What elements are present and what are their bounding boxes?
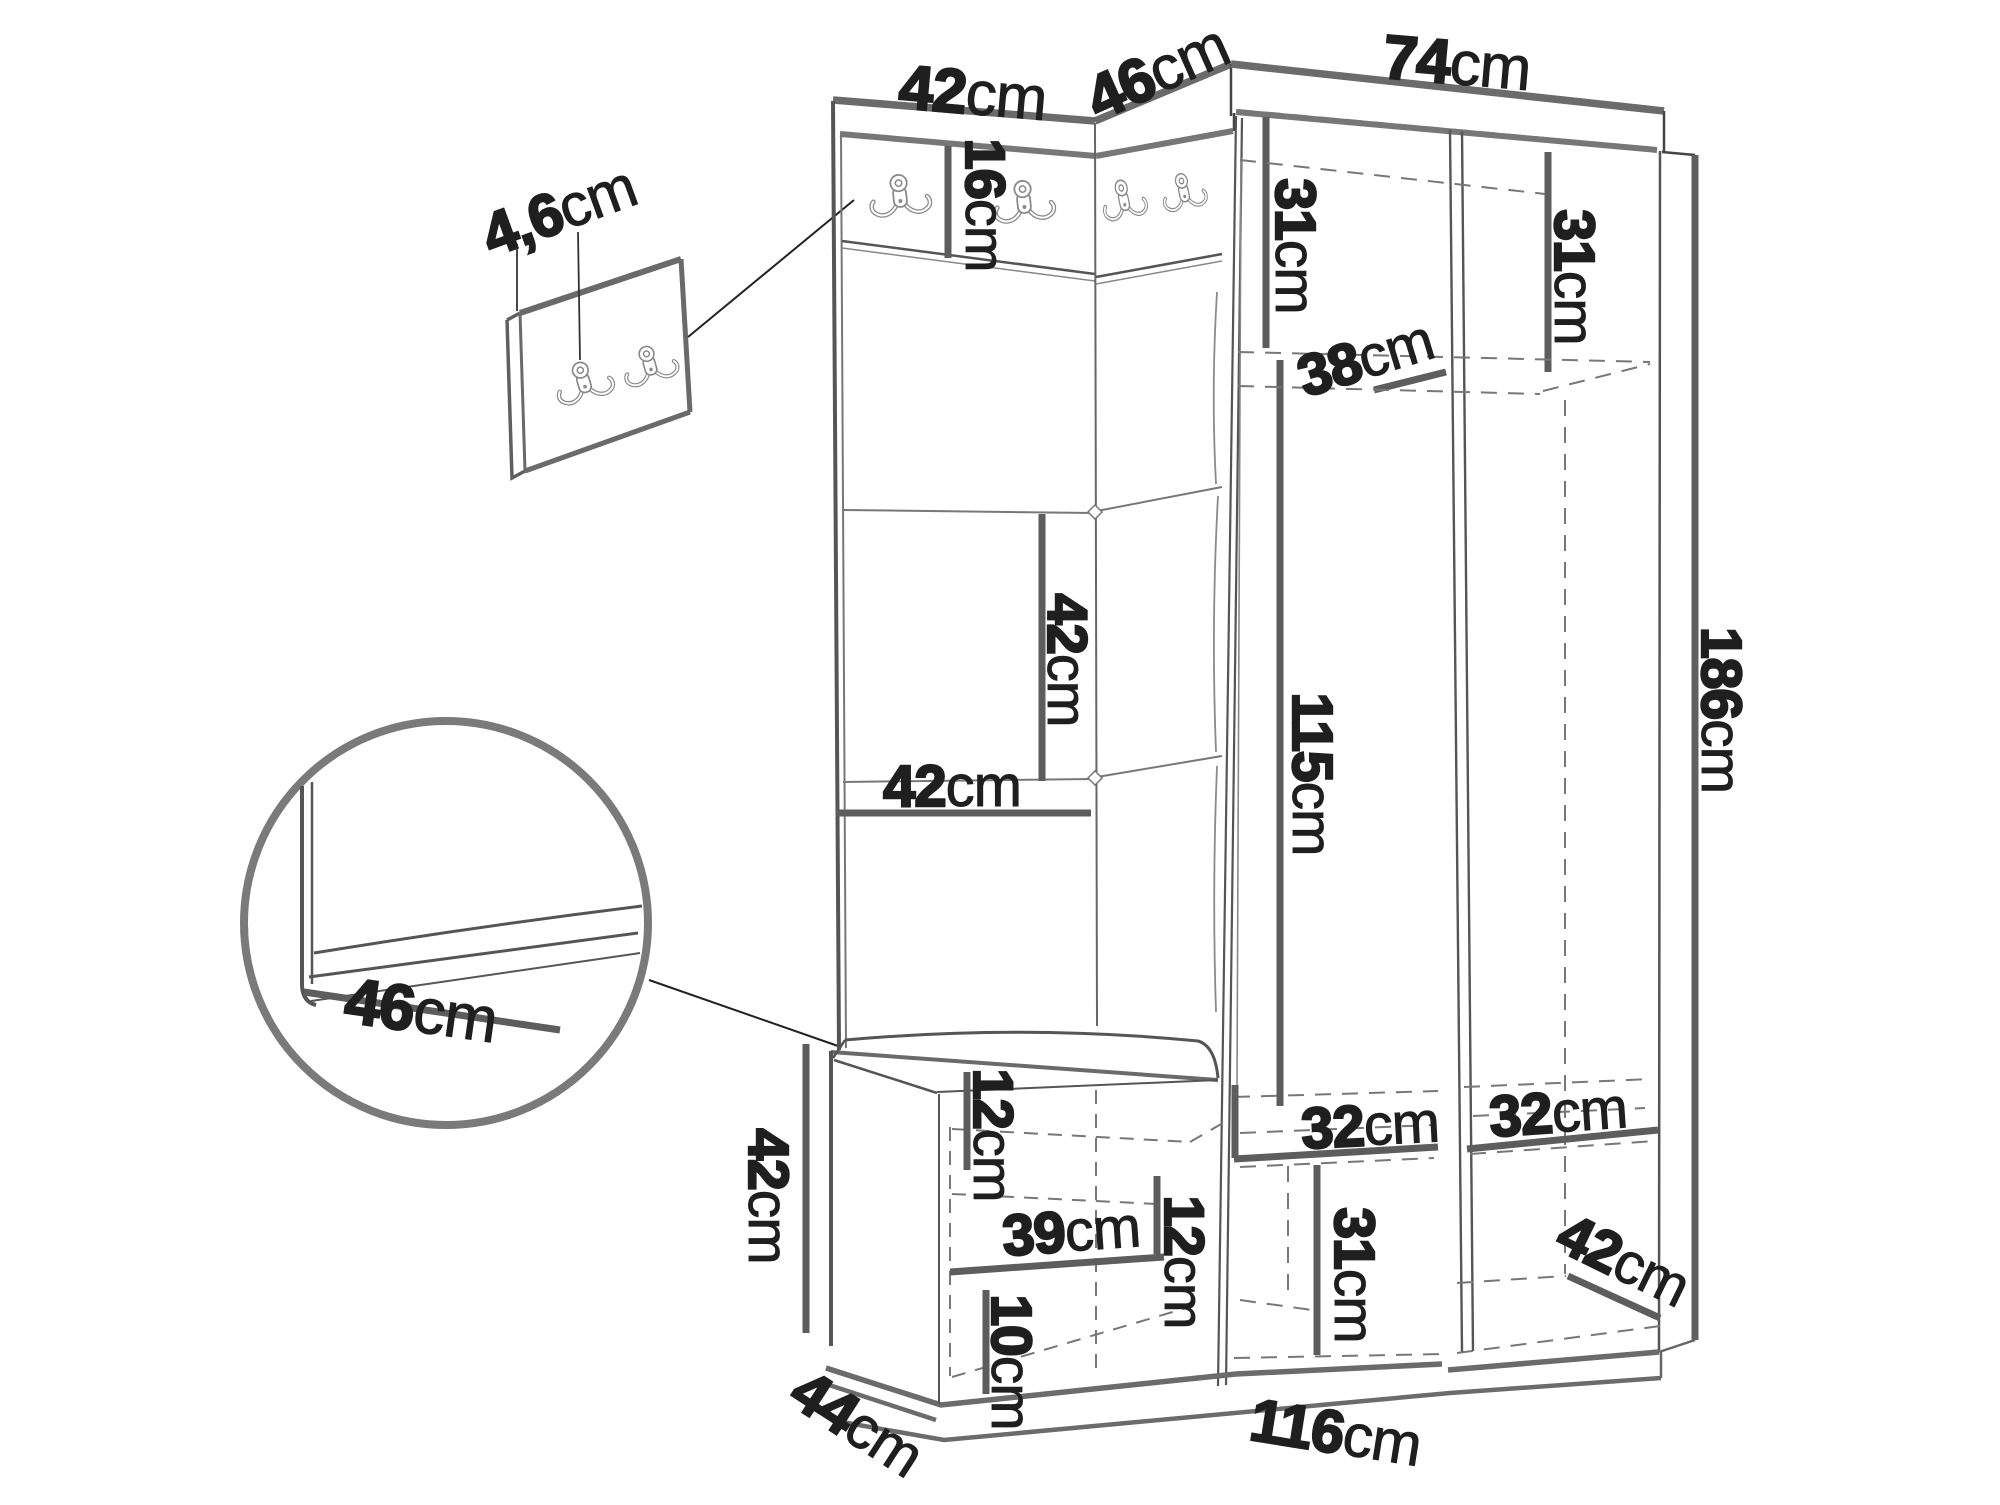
svg-text:39cm: 39cm	[1000, 1194, 1142, 1268]
svg-text:42cm: 42cm	[883, 754, 1021, 819]
svg-text:74cm: 74cm	[1380, 23, 1533, 105]
svg-text:32cm: 32cm	[1487, 1075, 1629, 1149]
svg-text:16cm: 16cm	[954, 139, 1017, 272]
svg-text:10cm: 10cm	[979, 1294, 1043, 1429]
svg-text:115cm: 115cm	[1280, 693, 1344, 856]
svg-text:42cm: 42cm	[736, 1128, 800, 1263]
svg-text:12cm: 12cm	[1153, 1196, 1216, 1329]
svg-text:32cm: 32cm	[1300, 1089, 1441, 1161]
svg-text:186cm: 186cm	[1689, 627, 1753, 793]
svg-text:31cm: 31cm	[1542, 209, 1606, 344]
svg-text:42cm: 42cm	[1036, 594, 1099, 727]
svg-text:42cm: 42cm	[896, 53, 1049, 135]
svg-text:12cm: 12cm	[962, 1069, 1025, 1202]
svg-text:31cm: 31cm	[1322, 1207, 1386, 1342]
svg-text:31cm: 31cm	[1263, 178, 1327, 313]
